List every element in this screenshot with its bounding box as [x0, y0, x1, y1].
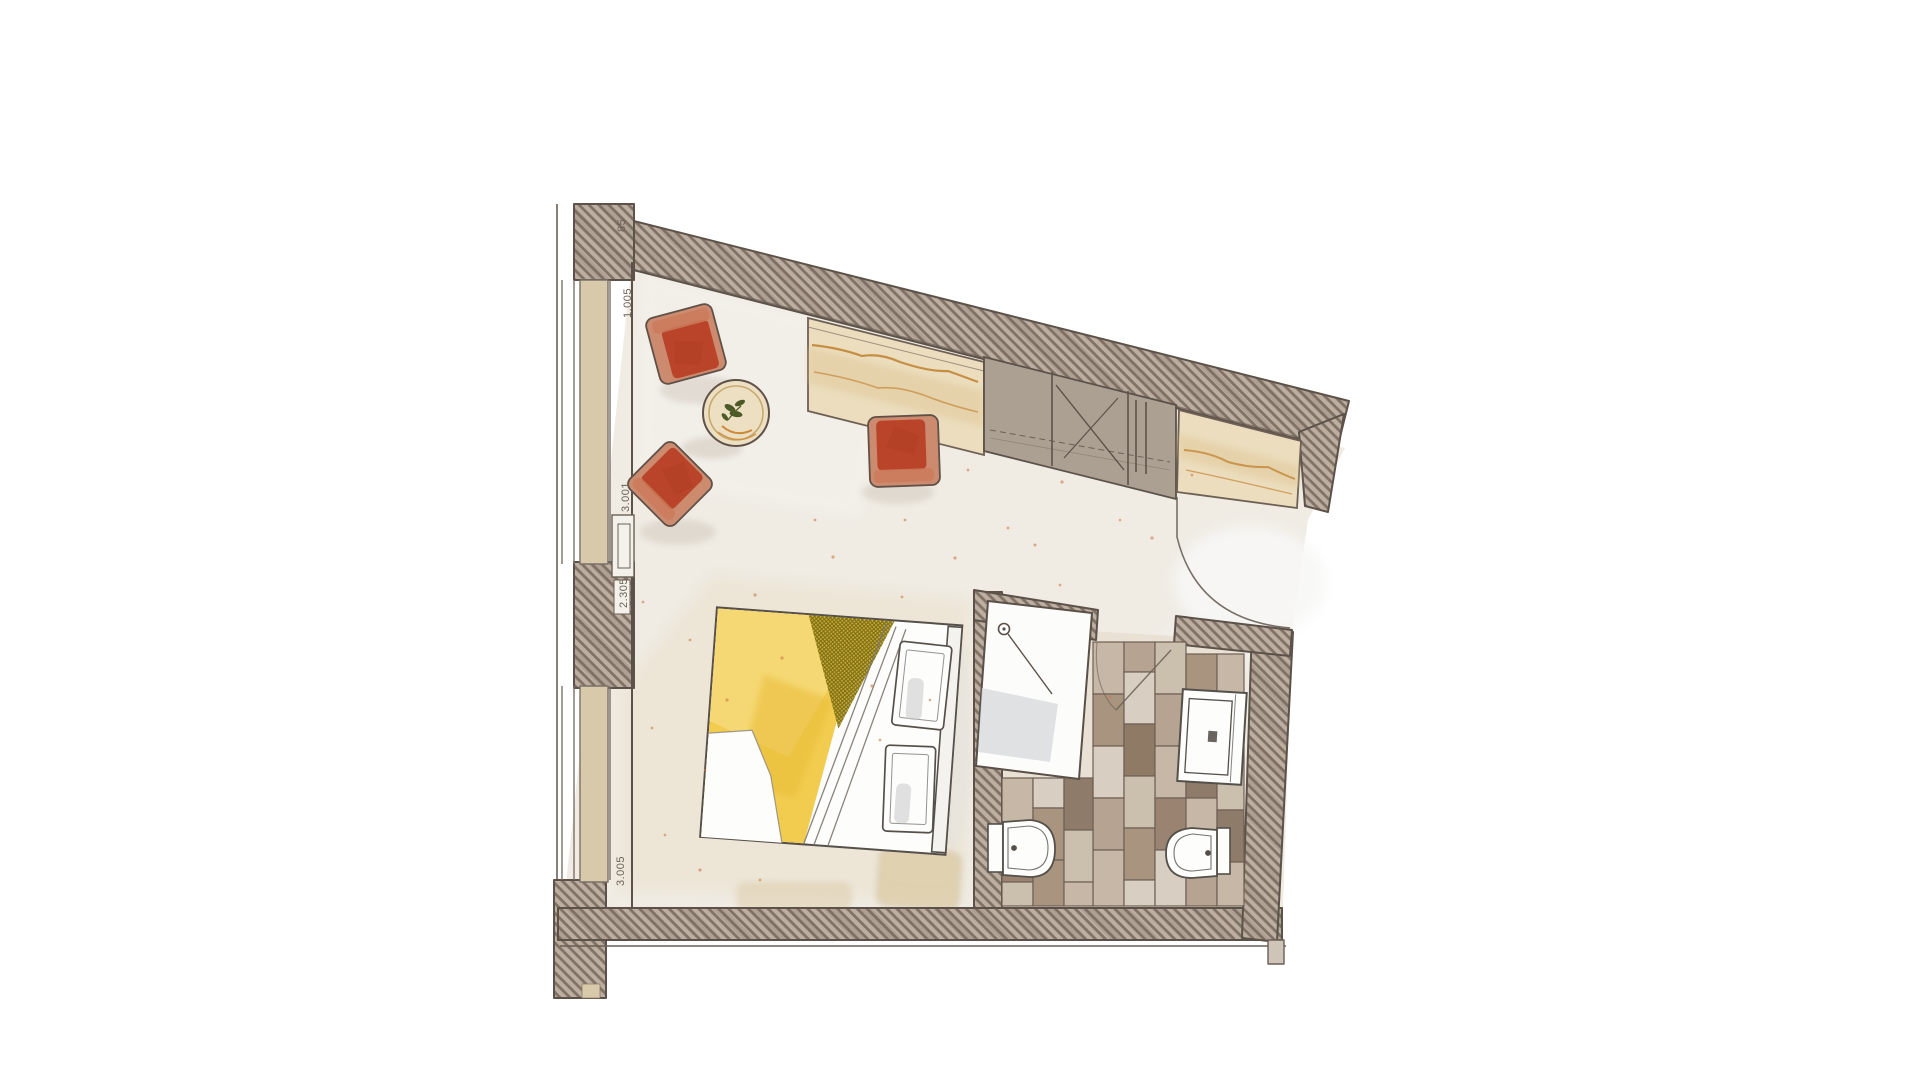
- svg-text:3.001: 3.001: [620, 482, 632, 512]
- svg-text:2.305: 2.305: [618, 578, 630, 608]
- svg-text:3.005: 3.005: [615, 856, 627, 886]
- svg-text:1.005: 1.005: [622, 288, 634, 318]
- svg-text:85: 85: [616, 219, 628, 232]
